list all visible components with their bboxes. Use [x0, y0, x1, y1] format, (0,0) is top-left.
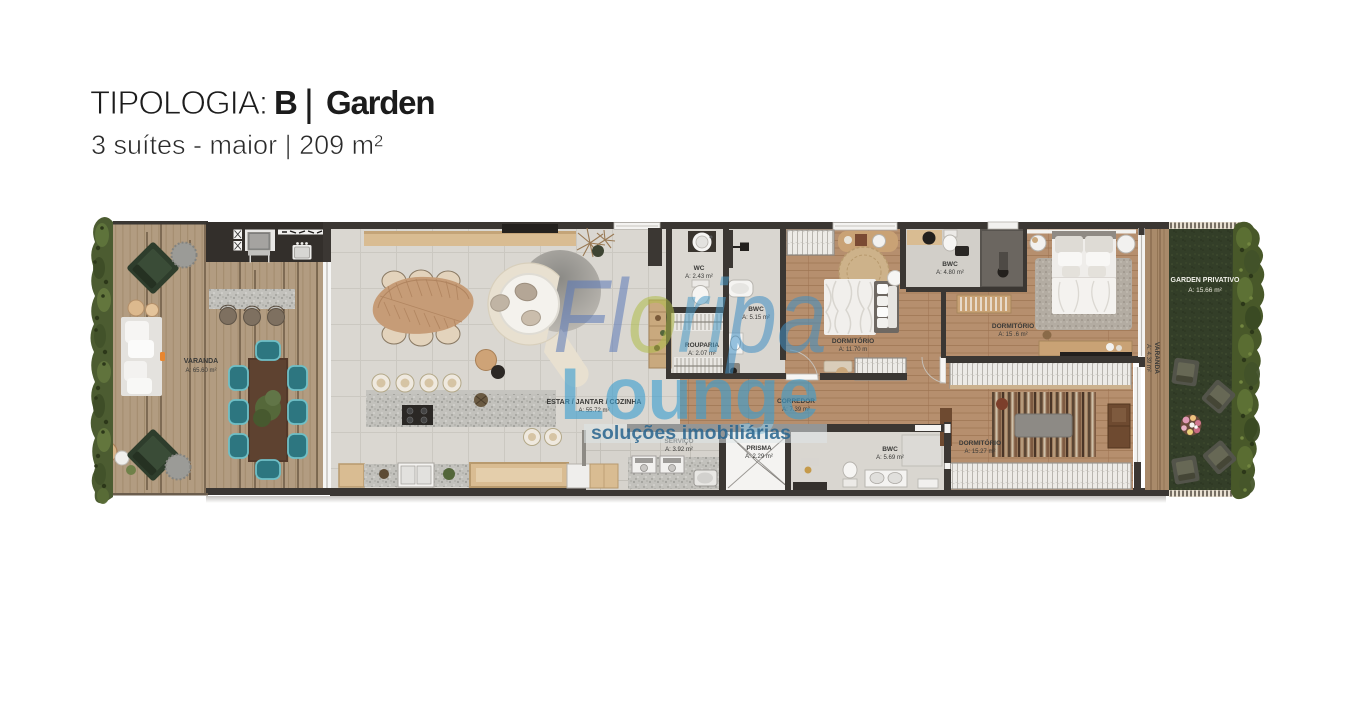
svg-text:BWC: BWC: [942, 261, 958, 268]
svg-text:3 suítes - maior | 209 m²: 3 suítes - maior | 209 m²: [91, 130, 383, 160]
svg-text:A: 15.66 m²: A: 15.66 m²: [1188, 287, 1222, 294]
svg-text:BWC: BWC: [882, 446, 898, 453]
svg-text:GARDEN PRIVATIVO: GARDEN PRIVATIVO: [1171, 277, 1241, 284]
svg-text:VARANDA: VARANDA: [1153, 342, 1160, 374]
svg-text:A: 4.80 m²: A: 4.80 m²: [936, 270, 964, 276]
svg-text:A: 15.27 m²: A: 15.27 m²: [964, 449, 995, 455]
svg-text:VARANDA: VARANDA: [184, 358, 218, 365]
svg-text:DORMITÓRIO: DORMITÓRIO: [992, 321, 1034, 330]
svg-text:DORMITÓRIO: DORMITÓRIO: [959, 438, 1001, 447]
svg-text:A: 5.69 m²: A: 5.69 m²: [876, 455, 904, 461]
svg-text:A: 3.92 m²: A: 3.92 m²: [665, 447, 693, 453]
svg-text:A: 11.70 m: A: 11.70 m: [839, 347, 868, 353]
svg-text:PRISMA: PRISMA: [746, 445, 772, 452]
svg-text:Garden: Garden: [326, 84, 436, 121]
svg-text:|: |: [304, 83, 314, 125]
svg-text:soluções imobiliárias: soluções imobiliárias: [591, 422, 791, 444]
svg-text:A: 65.60 m²: A: 65.60 m²: [185, 368, 216, 374]
svg-text:A: 4.39 m²: A: 4.39 m²: [1145, 344, 1151, 372]
svg-text:A: 15 .6 m²: A: 15 .6 m²: [998, 332, 1027, 338]
svg-text:TIPOLOGIA:: TIPOLOGIA:: [90, 84, 269, 121]
svg-text:DORMITÓRIO: DORMITÓRIO: [832, 336, 874, 345]
svg-text:A: 2.29 m²: A: 2.29 m²: [745, 454, 773, 460]
svg-text:B: B: [274, 84, 298, 121]
